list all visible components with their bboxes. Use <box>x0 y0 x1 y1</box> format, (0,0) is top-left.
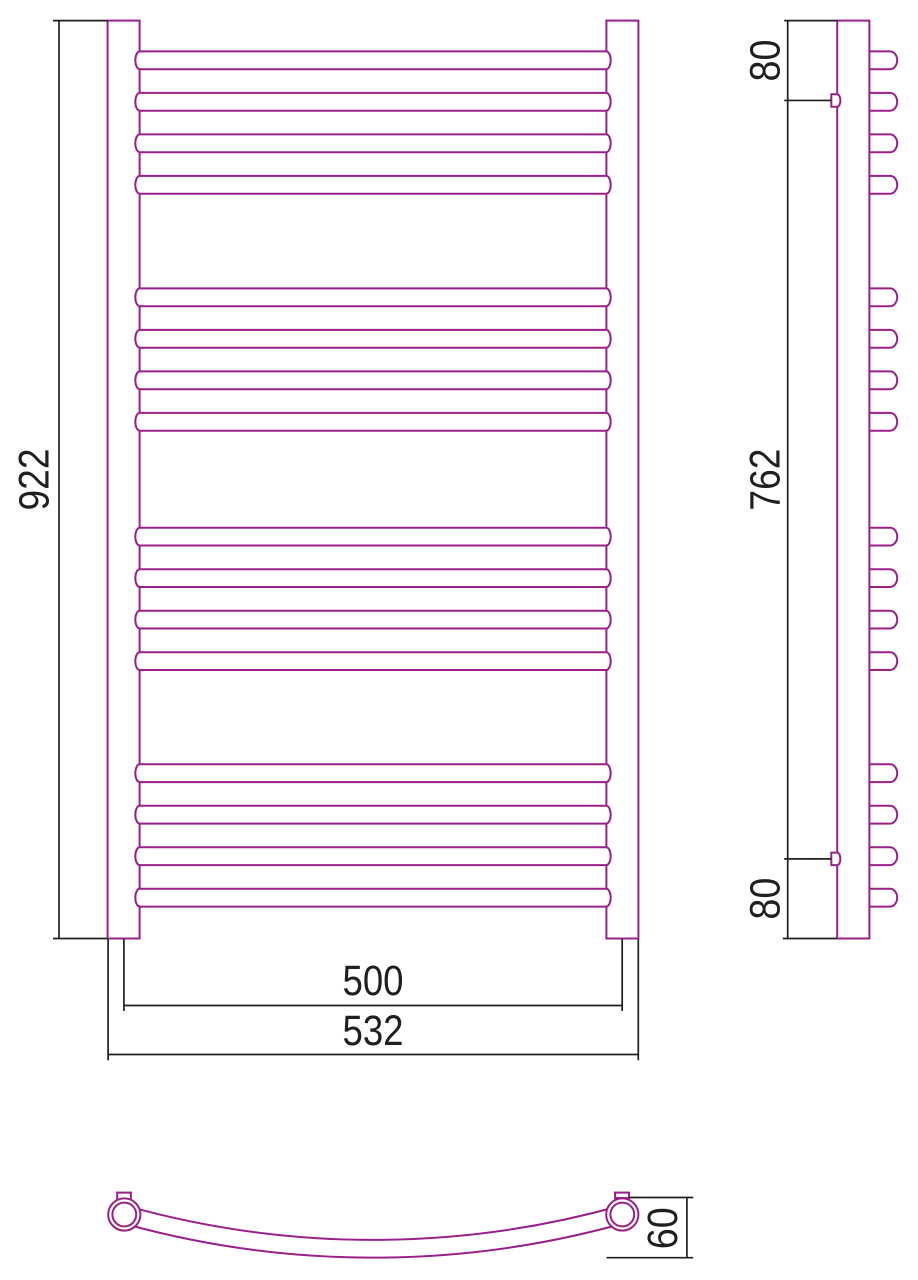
svg-text:500: 500 <box>343 957 404 1005</box>
svg-text:922: 922 <box>11 449 59 511</box>
svg-text:60: 60 <box>639 1207 687 1249</box>
svg-text:532: 532 <box>343 1007 404 1055</box>
svg-text:762: 762 <box>741 449 789 511</box>
svg-text:80: 80 <box>741 40 789 82</box>
svg-text:80: 80 <box>741 878 789 920</box>
